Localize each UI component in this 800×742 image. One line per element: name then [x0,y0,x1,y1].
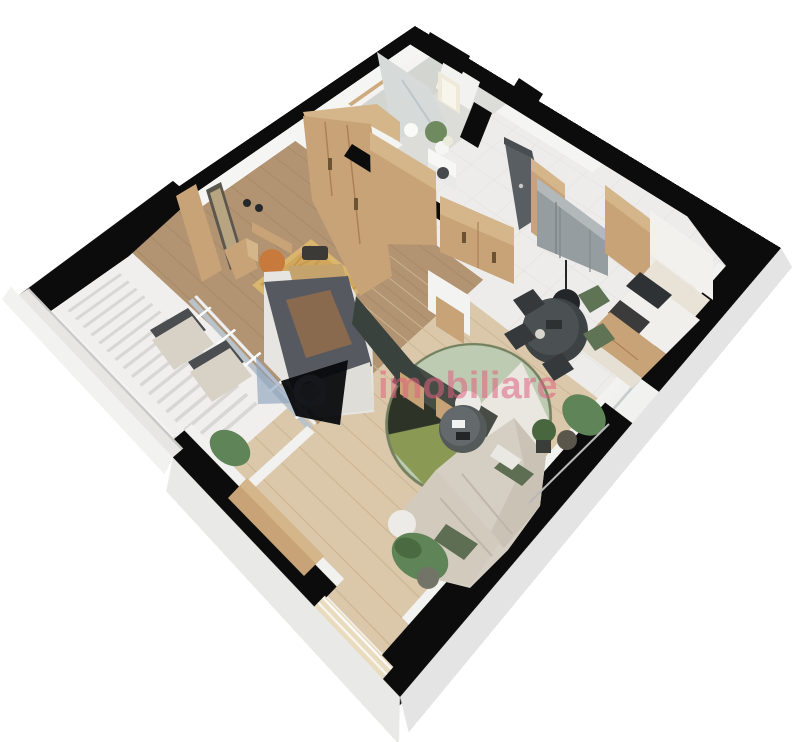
svg-text:imobiliare: imobiliare [378,365,558,407]
